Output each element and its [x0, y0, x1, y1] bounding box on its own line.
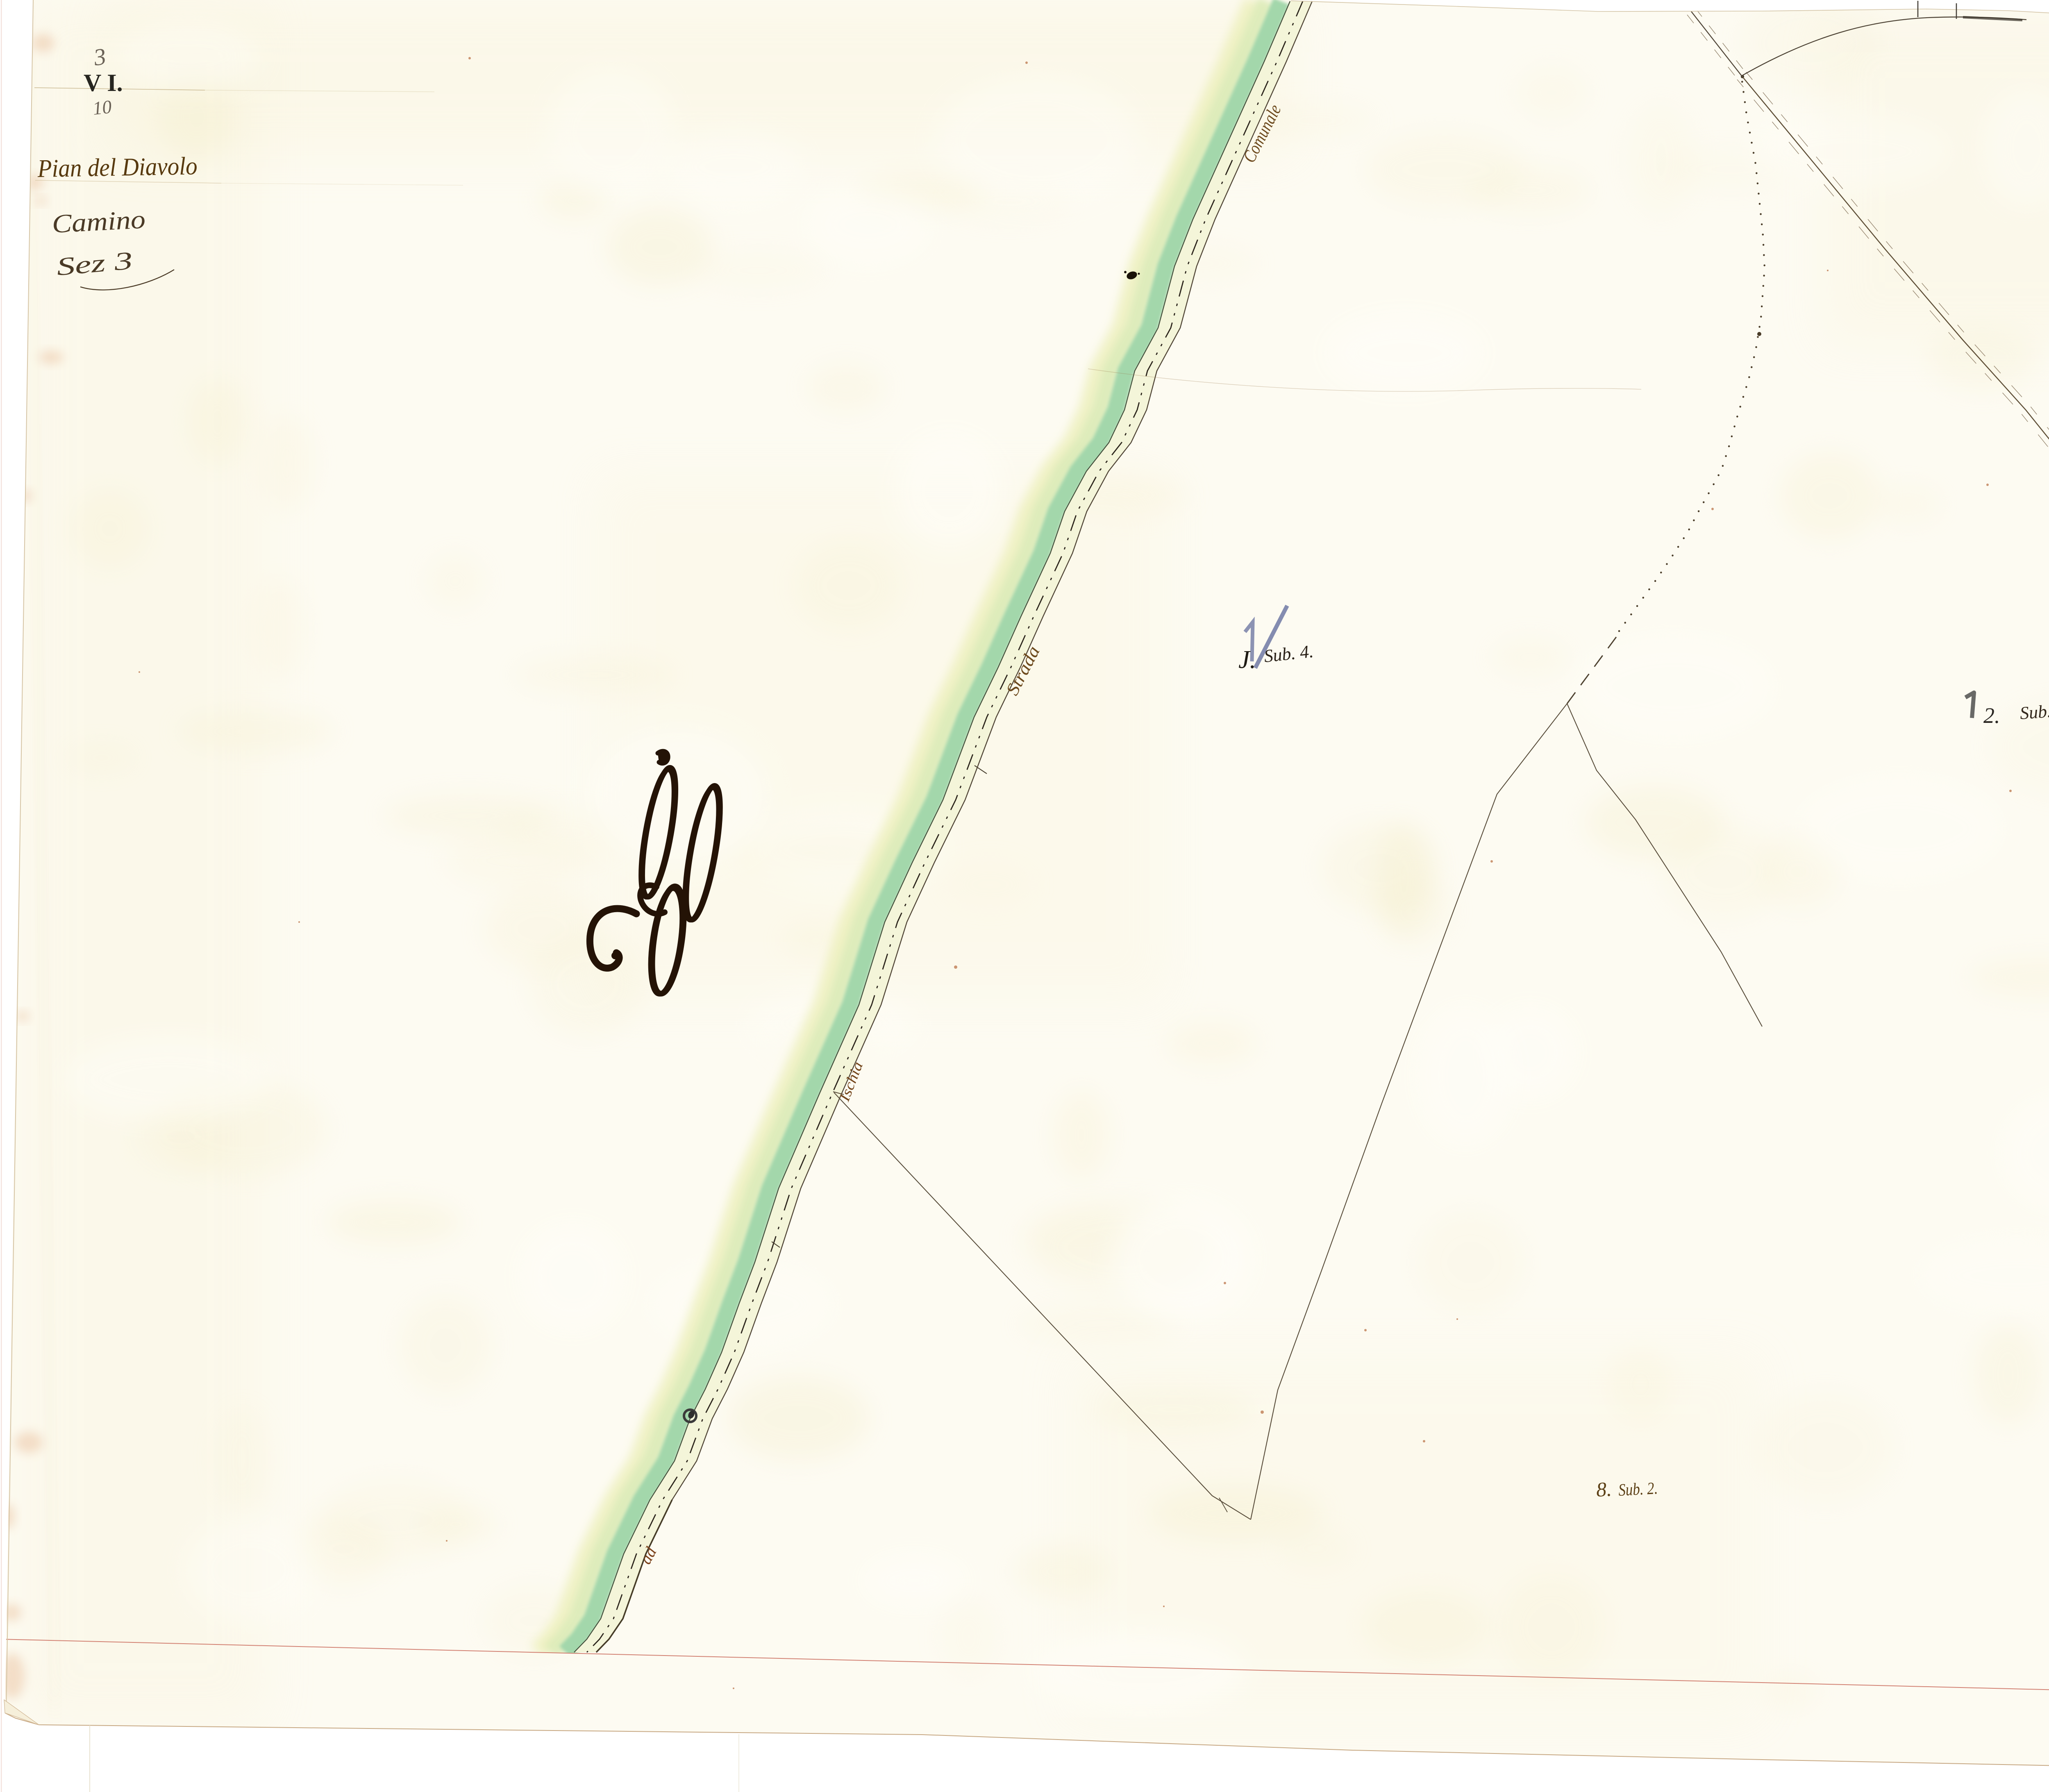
svg-text:V I.: V I. [84, 69, 123, 96]
svg-text:10: 10 [92, 96, 113, 119]
svg-text:Pian del Diavolo: Pian del Diavolo [37, 152, 198, 183]
svg-text:Camino: Camino [51, 204, 146, 238]
svg-text:2.: 2. [1983, 703, 2000, 728]
svg-text:Sub. 3.: Sub. 3. [2019, 700, 2049, 723]
svg-text:J.: J. [1238, 646, 1256, 674]
svg-text:8.: 8. [1596, 1477, 1612, 1501]
svg-text:Sub. 2.: Sub. 2. [1618, 1479, 1658, 1500]
